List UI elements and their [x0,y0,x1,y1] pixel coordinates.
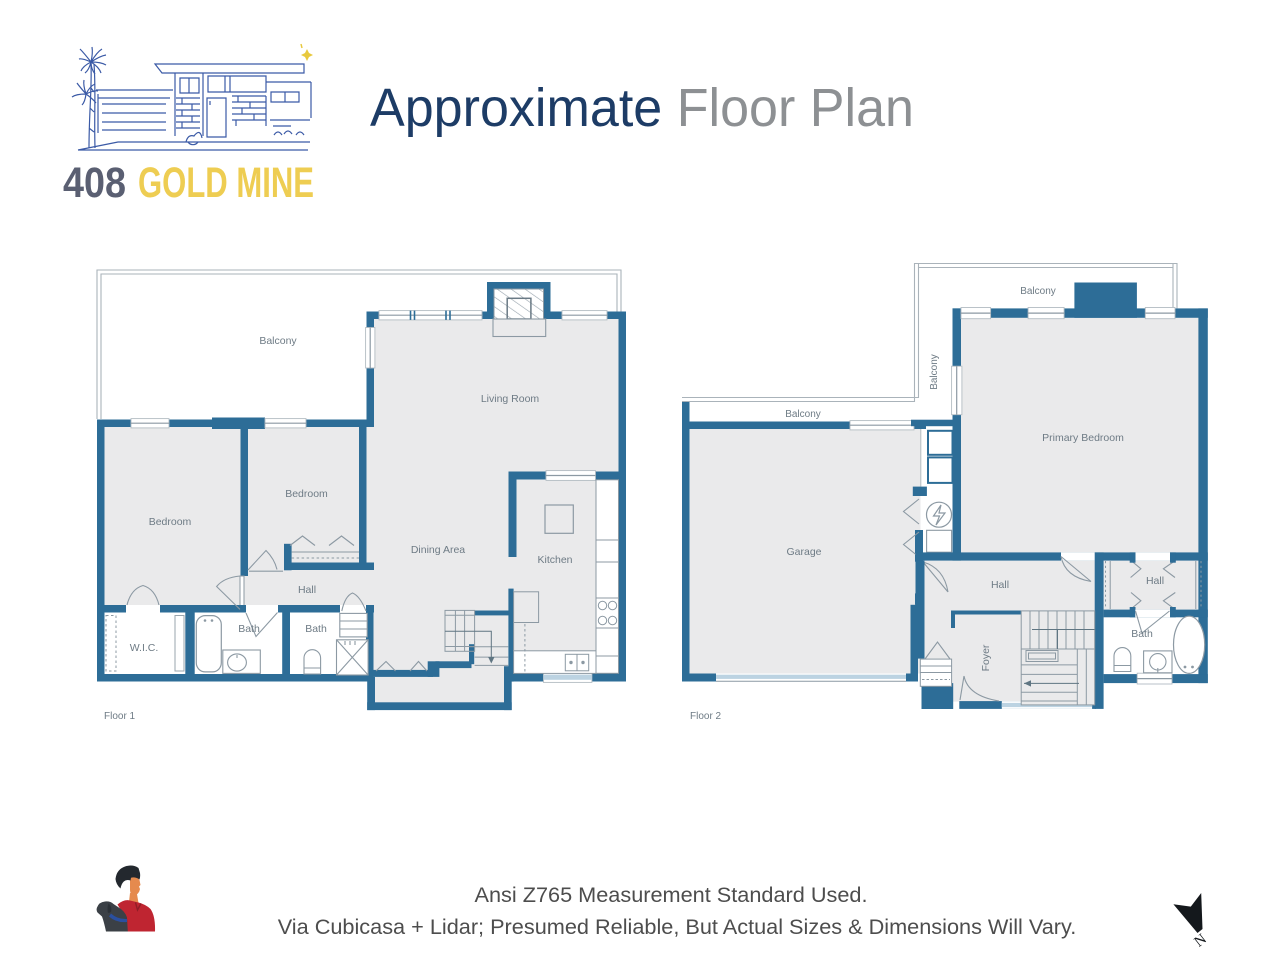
svg-text:Bath: Bath [305,623,327,635]
svg-text:Hall: Hall [1146,575,1164,587]
svg-text:Floor 2: Floor 2 [690,711,722,722]
svg-text:Foyer: Foyer [980,644,992,671]
svg-text:Bath: Bath [238,623,260,635]
svg-text:Floor 1: Floor 1 [104,711,136,722]
svg-text:Dining Area: Dining Area [411,544,465,556]
svg-text:Hall: Hall [991,579,1009,591]
svg-text:Balcony: Balcony [259,335,297,347]
svg-text:Garage: Garage [786,546,821,558]
svg-text:Bedroom: Bedroom [149,516,192,528]
svg-text:Hall: Hall [298,584,316,596]
svg-text:Bedroom: Bedroom [285,488,328,500]
svg-text:Balcony: Balcony [929,354,940,390]
svg-text:Bath: Bath [1131,628,1153,640]
svg-text:N: N [1192,931,1211,950]
svg-text:Living Room: Living Room [481,393,540,405]
svg-text:W.I.C.: W.I.C. [130,642,159,654]
svg-text:Balcony: Balcony [785,409,821,420]
svg-text:Balcony: Balcony [1020,286,1056,297]
svg-text:Kitchen: Kitchen [537,554,572,566]
svg-text:Primary Bedroom: Primary Bedroom [1042,432,1124,444]
